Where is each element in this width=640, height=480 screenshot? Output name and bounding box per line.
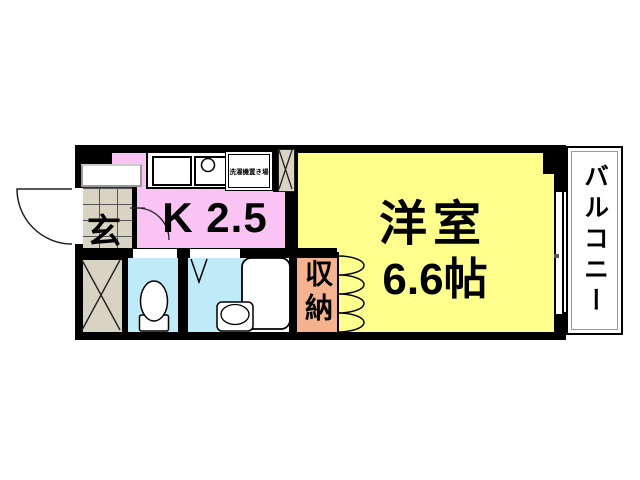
wall — [75, 244, 83, 340]
wall — [75, 332, 566, 340]
wall — [178, 258, 188, 332]
shoe-cabinet — [81, 164, 142, 187]
wall — [122, 258, 128, 332]
floor-plan: 洗濯機置き場 — [0, 0, 640, 480]
balcony-window — [554, 192, 564, 314]
entry-door-arc-icon — [17, 189, 72, 244]
kitchen-counter — [146, 153, 235, 189]
entry-door-opening — [75, 188, 83, 244]
wall — [543, 145, 566, 174]
balcony-label: バルコニー — [566, 150, 622, 330]
utility-box — [80, 258, 126, 334]
main-room-size-label: 6.6帖 — [350, 243, 520, 307]
washing-machine-space: 洗濯機置き場 — [225, 151, 273, 191]
kitchen-stove — [194, 156, 229, 186]
wall — [554, 174, 566, 192]
storage-label: 収納 — [295, 254, 339, 332]
toilet-room — [128, 258, 178, 332]
bathroom-floor — [188, 257, 244, 332]
pipe-space — [278, 149, 295, 192]
kitchen-label: K 2.5 — [135, 194, 295, 242]
wall — [75, 145, 112, 165]
wall — [75, 145, 566, 153]
toilet-door-opening — [133, 249, 177, 258]
bathroom-door-opening — [190, 249, 240, 258]
wall — [554, 312, 566, 338]
entrance-label: 玄 — [84, 204, 124, 253]
kitchen-sink — [152, 156, 192, 186]
washing-machine-label: 洗濯機置き場 — [228, 154, 270, 188]
